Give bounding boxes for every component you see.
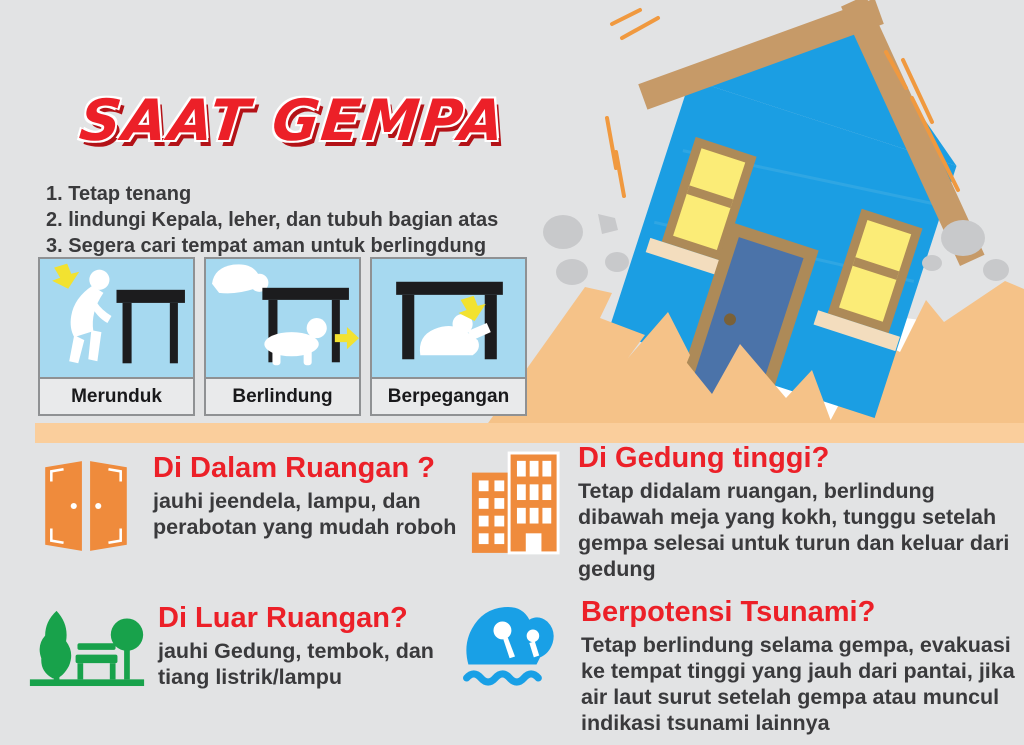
step-label-merunduk: Merunduk: [40, 377, 193, 414]
section-body-tsunami: Tetap berlindung selama gempa, evakuasi …: [581, 632, 1024, 736]
person-holding-icon: [420, 314, 491, 355]
step-panel-berlindung: Berlindung: [204, 257, 361, 416]
section-outdoor: Di Luar Ruangan? jauhi Gedung, tembok, d…: [28, 602, 458, 692]
park-icon: [28, 602, 146, 692]
wave-icon: [463, 596, 567, 690]
ground-strip: [35, 423, 1024, 443]
building-icon: [468, 442, 562, 560]
section-heading-tall-building: Di Gedung tinggi?: [578, 442, 1013, 475]
person-kneeling-icon: [212, 264, 268, 293]
section-heading-indoor: Di Dalam Ruangan ?: [153, 452, 483, 485]
section-body-tall-building: Tetap didalam ruangan, berlindung dibawa…: [578, 478, 1013, 582]
section-tall-building: Di Gedung tinggi? Tetap didalam ruangan,…: [468, 442, 1013, 582]
section-heading-tsunami: Berpotensi Tsunami?: [581, 596, 1024, 629]
step-label-berpegangan: Berpegangan: [372, 377, 525, 414]
person-ducking-icon: [69, 270, 111, 364]
step-panel-merunduk: Merunduk: [38, 257, 195, 416]
step-panel-berpegangan: Berpegangan: [370, 257, 527, 416]
page-title: SAAT GEMPA: [77, 88, 544, 154]
section-heading-outdoor: Di Luar Ruangan?: [158, 602, 463, 635]
infographic-page: SAAT GEMPA 1. Tetap tenang 2. lindungi K…: [0, 0, 1024, 745]
steps-row: Merunduk: [38, 257, 527, 416]
berpegangan-illustration: [372, 259, 525, 377]
instruction-line-2: 2. lindungi Kepala, leher, dan tubuh bag…: [46, 207, 566, 233]
table-icon: [117, 290, 185, 363]
section-indoor: Di Dalam Ruangan ? jauhi jeendela, lampu…: [35, 452, 455, 560]
arrow-icon: [52, 264, 79, 289]
door-icon: [35, 452, 137, 560]
instruction-line-1: 1. Tetap tenang: [46, 181, 566, 207]
section-body-indoor: jauhi jeendela, lampu, dan perabotan yan…: [153, 488, 483, 540]
merunduk-illustration: [40, 259, 193, 377]
step-label-berlindung: Berlindung: [206, 377, 359, 414]
section-body-outdoor: jauhi Gedung, tembok, dan tiang listrik/…: [158, 638, 463, 690]
berlindung-illustration: [206, 259, 359, 377]
section-tsunami: Berpotensi Tsunami? Tetap berlindung sel…: [463, 596, 1018, 736]
